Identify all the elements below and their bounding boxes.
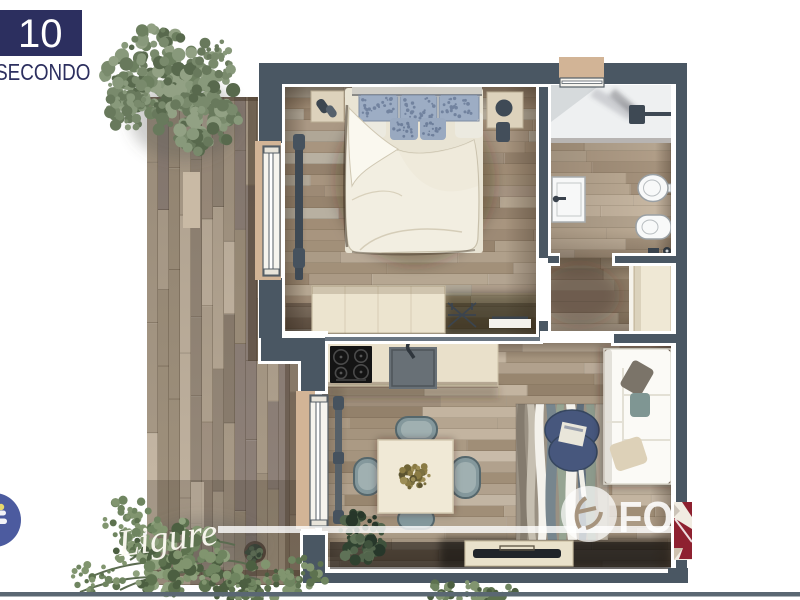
- svg-text:10: 10: [18, 12, 63, 56]
- svg-text:SECONDO: SECONDO: [0, 60, 90, 85]
